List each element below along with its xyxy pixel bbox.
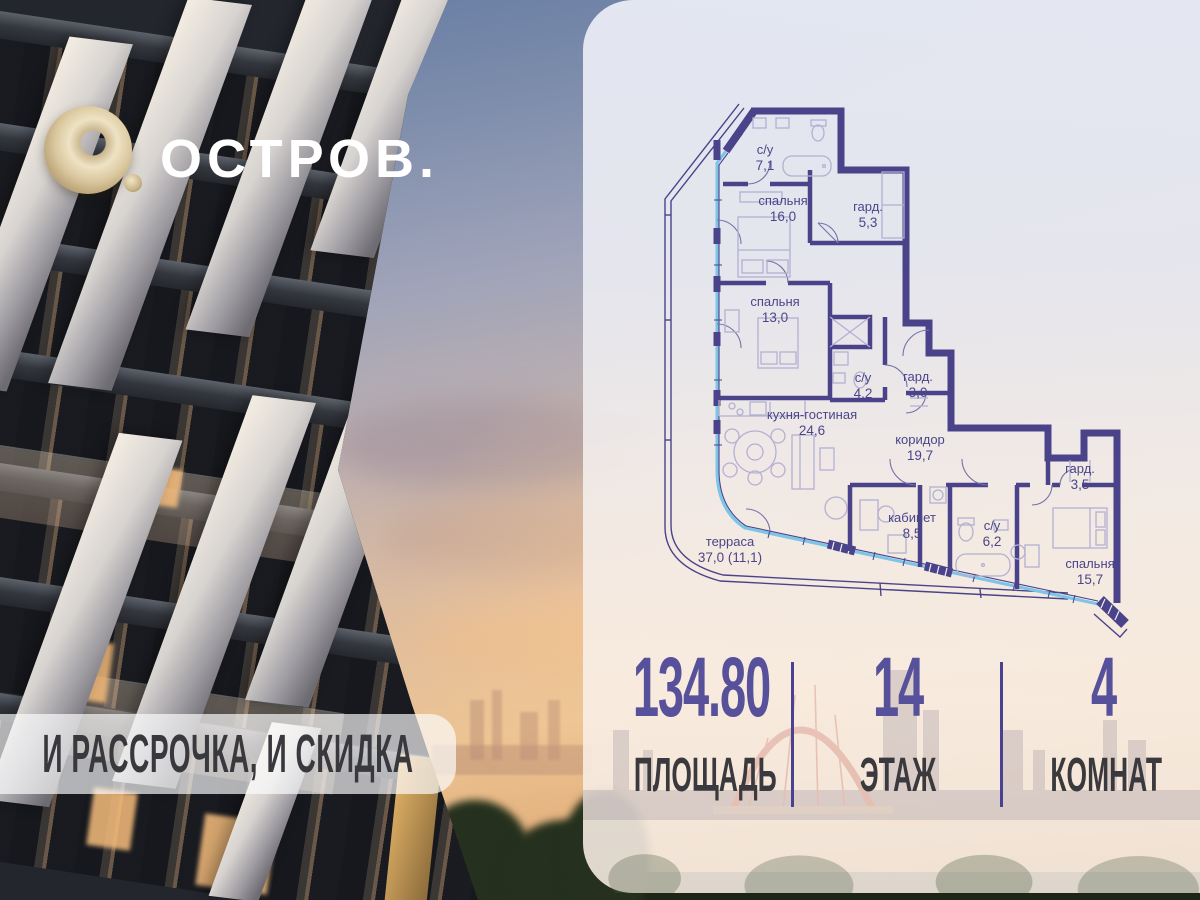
stat-rooms: 4 КОМНАТ	[1007, 648, 1200, 798]
stat-floor: 14 ЭТАЖ	[798, 648, 998, 798]
svg-text:6,2: 6,2	[983, 534, 1002, 549]
svg-text:спальня: спальня	[1065, 556, 1114, 571]
stat-divider	[791, 662, 794, 807]
svg-text:16,0: 16,0	[770, 209, 796, 224]
room-label-kitchen: кухня-гостиная 24,6	[767, 407, 857, 438]
room-label-study: кабинет 8,5	[888, 510, 936, 541]
svg-text:с/у: с/у	[855, 370, 872, 385]
stat-area-value: 134.80	[633, 648, 747, 726]
svg-text:13,0: 13,0	[762, 310, 788, 325]
svg-text:с/у: с/у	[757, 142, 774, 157]
trees-faint	[583, 820, 1200, 893]
room-label-su42: с/у 4,2	[854, 370, 873, 401]
furniture	[719, 118, 1107, 576]
stat-divider	[1000, 662, 1003, 807]
room-label-terrace: терраса 37,0 (11,1)	[698, 534, 762, 565]
svg-text:3,0: 3,0	[909, 385, 928, 400]
room-label-su62: с/у 6,2	[983, 518, 1002, 549]
svg-text:19,7: 19,7	[907, 448, 933, 463]
room-label-bedroom157: спальня 15,7	[1065, 556, 1114, 587]
svg-text:15,7: 15,7	[1077, 572, 1103, 587]
logo-dot-icon	[124, 174, 142, 192]
stat-area-label: ПЛОЩАДЬ	[634, 754, 746, 798]
stat-area: 134.80 ПЛОЩАДЬ	[588, 648, 792, 798]
svg-text:спальня: спальня	[750, 294, 799, 309]
floor-plan: с/у 7,1 спальня 16,0 гард. 5,3 спальня 1…	[620, 80, 1180, 660]
brand-name: ОСТРОВ.	[160, 128, 439, 190]
svg-text:5,3: 5,3	[859, 215, 878, 230]
promo-banner: И РАССРОЧКА, И СКИДКА	[0, 714, 456, 794]
svg-text:гард.: гард.	[853, 199, 883, 214]
svg-text:8,5: 8,5	[903, 526, 922, 541]
svg-text:7,1: 7,1	[756, 158, 775, 173]
stat-rooms-value: 4	[1049, 648, 1157, 726]
svg-text:кабинет: кабинет	[888, 510, 936, 525]
svg-text:гард.: гард.	[903, 369, 933, 384]
stat-rooms-label: КОМНАТ	[1050, 754, 1156, 798]
svg-text:терраса: терраса	[706, 534, 755, 549]
stat-floor-label: ЭТАЖ	[843, 754, 953, 798]
svg-text:24,6: 24,6	[799, 423, 825, 438]
svg-text:коридор: коридор	[895, 432, 945, 447]
svg-text:кухня-гостиная: кухня-гостиная	[767, 407, 857, 422]
svg-text:3,5: 3,5	[1071, 477, 1090, 492]
svg-text:гард.: гард.	[1065, 461, 1095, 476]
logo-ring-icon	[44, 106, 132, 194]
svg-text:4,2: 4,2	[854, 386, 873, 401]
stat-floor-value: 14	[842, 648, 954, 726]
room-label-wardrobe53: гард. 5,3	[853, 199, 883, 230]
svg-text:с/у: с/у	[984, 518, 1001, 533]
room-label-su71: с/у 7,1	[756, 142, 775, 173]
room-label-corridor: коридор 19,7	[895, 432, 945, 463]
advert-page: с/у 7,1 спальня 16,0 гард. 5,3 спальня 1…	[0, 0, 1200, 900]
room-label-bedroom16: спальня 16,0	[758, 193, 807, 224]
svg-text:37,0 (11,1): 37,0 (11,1)	[698, 550, 762, 565]
room-label-wardrobe30: гард. 3,0	[903, 369, 933, 400]
svg-text:спальня: спальня	[758, 193, 807, 208]
promo-banner-text: И РАССРОЧКА, И СКИДКА	[42, 723, 413, 785]
